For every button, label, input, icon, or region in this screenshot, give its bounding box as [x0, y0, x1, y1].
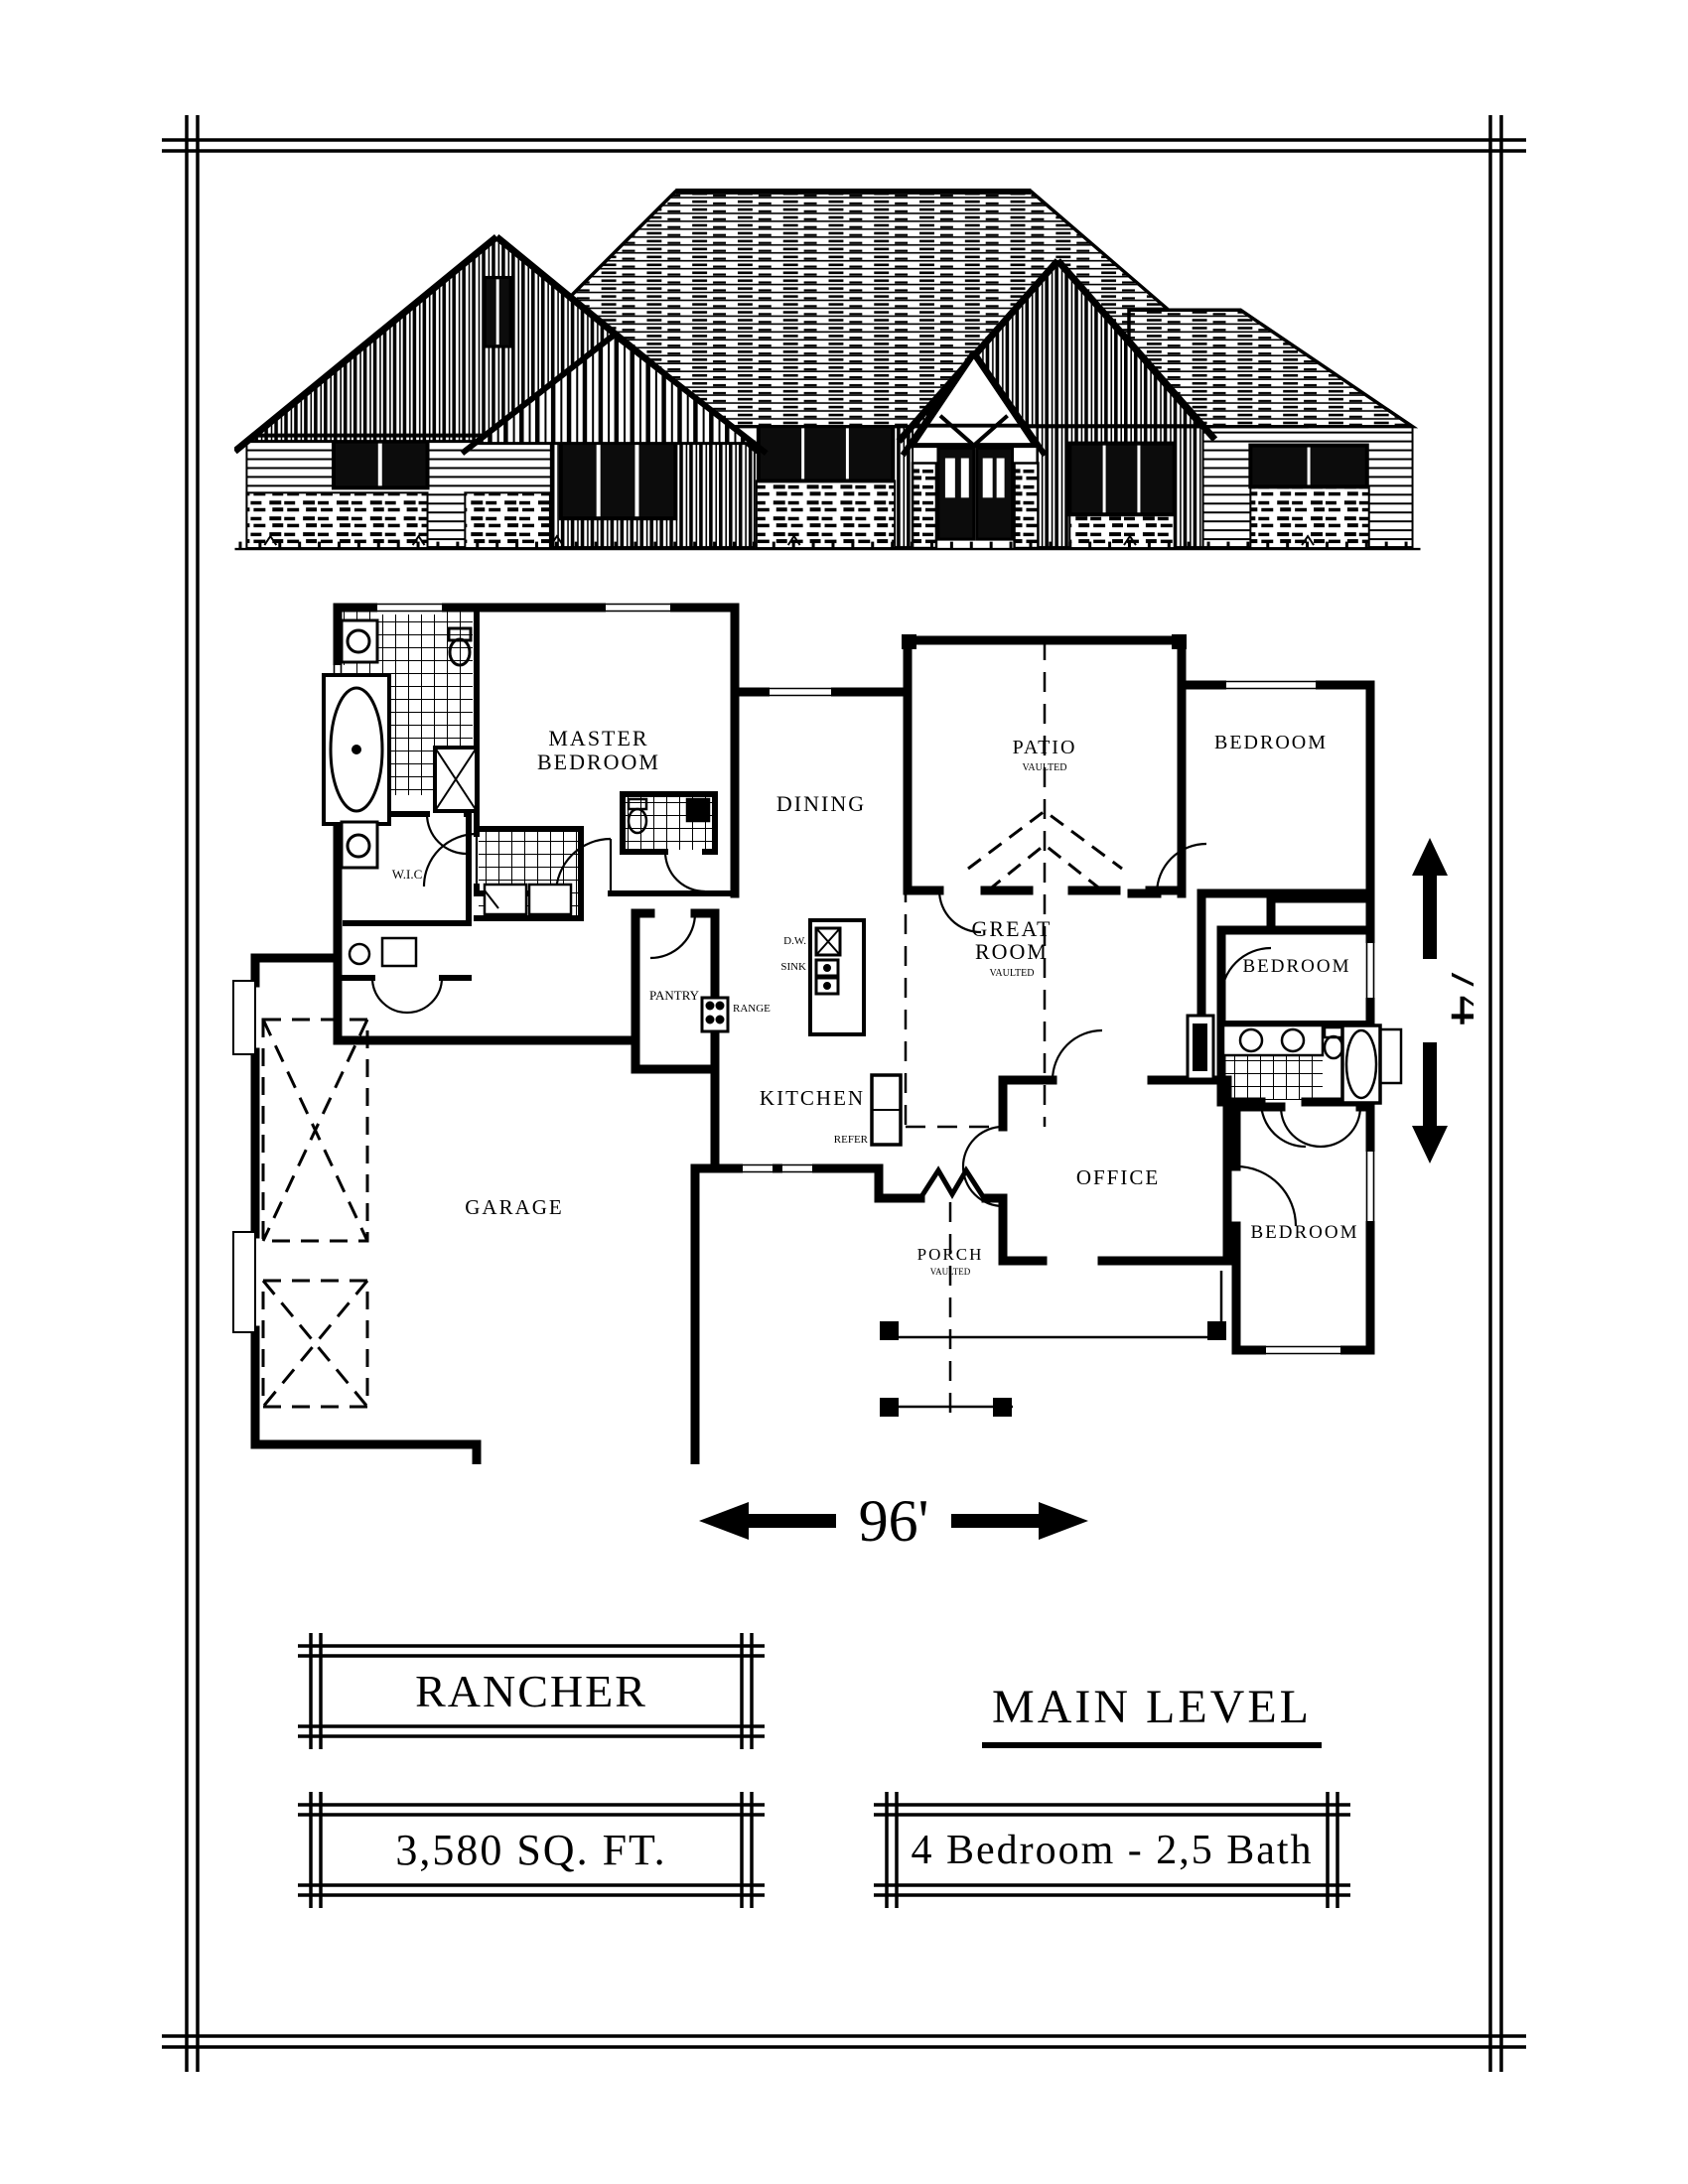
entry-door — [938, 449, 1013, 540]
label-range: RANGE — [733, 1003, 771, 1015]
label-bedroom-bottom: BEDROOM — [1250, 1222, 1358, 1243]
label-pantry: PANTRY — [649, 988, 700, 1003]
label-great-note: VAULTED — [989, 968, 1034, 979]
label-office: OFFICE — [1076, 1165, 1160, 1189]
front-elevation-drawing — [234, 167, 1421, 562]
label-porch: PORCH — [917, 1245, 984, 1264]
floor-plan-drawing: MASTER BEDROOM DINING PATIO VAULTED BEDR… — [228, 571, 1435, 1464]
label-dining: DINING — [776, 791, 866, 816]
label-refer: REFER — [834, 1134, 869, 1146]
level-heading-text: MAIN LEVEL — [982, 1680, 1322, 1748]
configuration-box: 4 Bedroom - 2,5 Bath — [874, 1792, 1350, 1908]
label-dw: D.W. — [783, 935, 806, 947]
dimension-width-value: 96' — [859, 1488, 929, 1554]
configuration-value: 4 Bedroom - 2,5 Bath — [874, 1792, 1350, 1908]
mud-room-fixtures — [350, 938, 416, 966]
blueprint-page: MASTER BEDROOM DINING PATIO VAULTED BEDR… — [0, 0, 1688, 2184]
label-porch-note: VAULTED — [930, 1267, 971, 1277]
dimension-depth-value: 74' — [1439, 966, 1474, 1036]
dimension-depth: 74' — [1390, 832, 1474, 1169]
plan-name-box: RANCHER — [298, 1633, 765, 1749]
label-bedroom-mid: BEDROOM — [1242, 956, 1350, 977]
label-master-line1: MASTER — [548, 726, 648, 751]
label-kitchen: KITCHEN — [760, 1086, 865, 1110]
label-patio-note: VAULTED — [1022, 762, 1066, 773]
label-master-line2: BEDROOM — [537, 750, 660, 774]
porch-slab — [880, 1271, 1226, 1417]
label-garage: GARAGE — [465, 1195, 564, 1219]
label-patio: PATIO — [1013, 737, 1077, 758]
plan-name: RANCHER — [298, 1633, 765, 1749]
garage-bays — [263, 1020, 367, 1407]
dimension-width: 96' — [685, 1481, 1102, 1561]
label-great-line2: ROOM — [975, 939, 1049, 964]
fireplace — [1188, 1016, 1213, 1079]
label-sink: SINK — [780, 961, 806, 973]
label-wic: W.I.C — [392, 867, 423, 882]
label-great-line1: GREAT — [972, 916, 1053, 941]
area-box: 3,580 SQ. FT. — [298, 1792, 765, 1908]
kitchen-fixtures — [702, 920, 901, 1145]
area-value: 3,580 SQ. FT. — [298, 1792, 765, 1908]
level-heading: MAIN LEVEL — [973, 1680, 1331, 1748]
label-bedroom-top: BEDROOM — [1214, 732, 1328, 753]
